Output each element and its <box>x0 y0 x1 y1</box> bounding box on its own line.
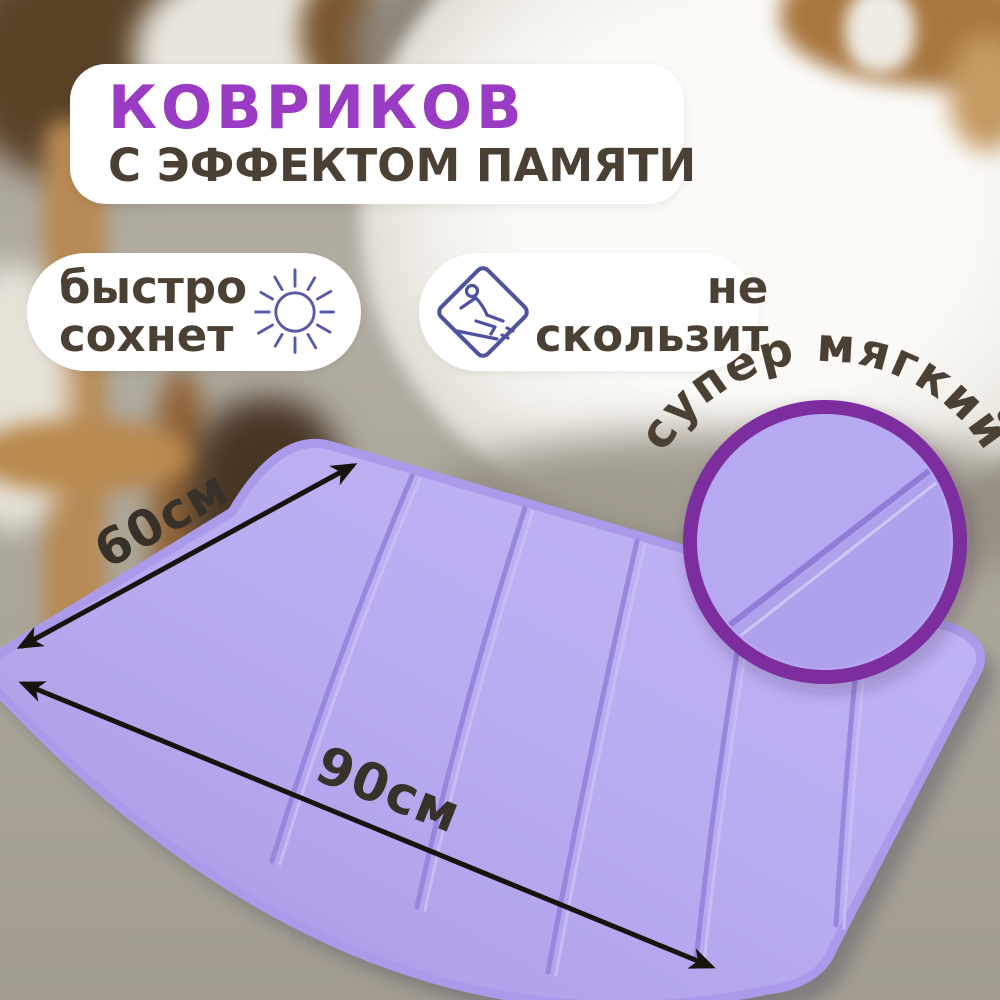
feature-badge-fast-dry: быстро сохнет <box>27 253 361 371</box>
feature-non-slip-label: не скользит <box>535 264 768 360</box>
sun-icon <box>247 264 343 360</box>
slip-warning-icon <box>431 260 535 364</box>
feature-fast-dry-line2: сохнет <box>59 312 247 360</box>
page-title: КОВРИКОВ <box>108 76 684 140</box>
page-subtitle: С ЭФФЕКТОМ ПАМЯТИ <box>108 140 684 192</box>
feature-fast-dry-line1: быстро <box>59 264 247 312</box>
feature-fast-dry-label: быстро сохнет <box>59 264 247 360</box>
product-image: 60см 90см супер мягкий КОВРИКОВ С ЭФФЕКТ… <box>0 0 1000 1000</box>
feature-badge-non-slip: не скользит <box>419 253 759 371</box>
feature-non-slip-line2: скользит <box>535 312 768 360</box>
title-card: КОВРИКОВ С ЭФФЕКТОМ ПАМЯТИ <box>70 64 684 204</box>
feature-non-slip-line1: не <box>535 264 768 312</box>
